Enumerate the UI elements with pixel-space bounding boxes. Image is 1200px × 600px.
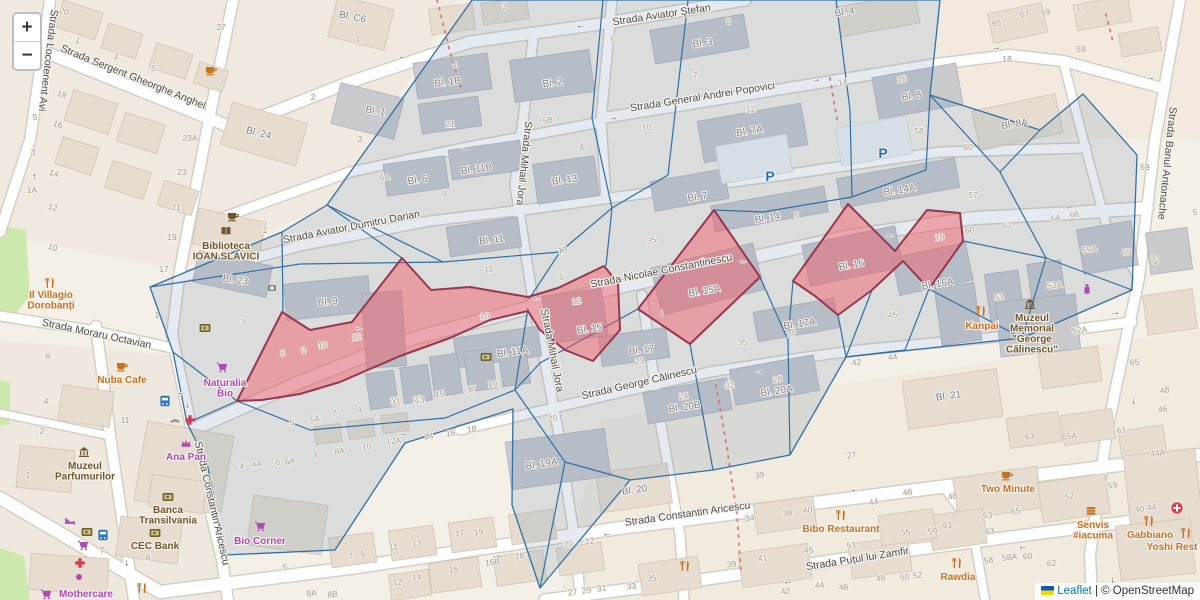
poi-label: Mothercare [59, 589, 113, 600]
house-number: 5B [542, 114, 554, 125]
house-number: 13 [414, 394, 425, 405]
house-number: 10 [317, 339, 328, 350]
hospital-icon [1171, 502, 1182, 513]
house-number: 59 [1076, 44, 1086, 54]
poi-label: Gabbiano [1127, 530, 1173, 541]
house-number: 52 [1064, 490, 1075, 501]
ukraine-flag-icon [1041, 586, 1054, 595]
oneway-arrow-icon: → [177, 389, 187, 400]
house-number: 46 [838, 581, 849, 592]
attribution-bar: Leaflet | © OpenStreetMap [1035, 583, 1200, 600]
house-number: 10 [361, 440, 372, 451]
oneway-arrow-icon: → [183, 400, 194, 410]
osm-attribution-text: © OpenStreetMap [1101, 585, 1194, 597]
oneway-arrow-icon: → [1018, 543, 1028, 554]
building [16, 445, 75, 493]
house-number: 6 [146, 552, 151, 562]
oneway-arrow-icon: → [602, 530, 612, 541]
house-number: 1 [263, 225, 268, 235]
block-label: Bl. 9 [317, 296, 338, 309]
oneway-arrow-icon: → [738, 257, 748, 268]
book-icon [222, 227, 231, 235]
house-number: 5 [1193, 207, 1198, 217]
bus-icon [160, 396, 169, 406]
building [1145, 227, 1192, 274]
house-number: 1 [26, 470, 31, 480]
house-number: 3 [31, 147, 36, 157]
house-number: 5 [290, 417, 295, 427]
house-number: 27 [216, 22, 226, 32]
house-number: 67 [1019, 8, 1030, 19]
house-number: 61 [942, 519, 953, 530]
parking-icon: P [878, 145, 887, 161]
house-number: 17 [454, 527, 465, 538]
house-number: 13 [557, 244, 568, 255]
house-number: 69 [1149, 254, 1161, 265]
house-number: 18 [1002, 54, 1012, 64]
house-number: 55 [900, 526, 911, 537]
oneway-arrow-icon: → [495, 552, 505, 563]
house-number: 19 [487, 378, 498, 389]
zoom-in-button[interactable]: + [14, 14, 40, 42]
house-number: 12 [392, 576, 403, 587]
oneway-arrow-icon: → [1065, 203, 1075, 214]
house-number: 10 [641, 121, 652, 132]
poi-label: Yoshi Rest [1147, 542, 1199, 553]
house-number: 51 [846, 539, 857, 550]
oneway-arrow-icon: → [576, 22, 586, 33]
house-number: 46 [902, 486, 913, 497]
house-number: 58A [1001, 551, 1018, 563]
house-number: 44A [1149, 447, 1166, 459]
house-number: 20 [547, 412, 558, 423]
oneway-arrow-icon: → [458, 142, 468, 153]
house-number: 32 [724, 379, 735, 390]
house-number: 16 [445, 427, 456, 438]
house-number: 65 [991, 17, 1002, 28]
house-number: 14 [423, 430, 434, 441]
house-number: 12 [571, 295, 582, 306]
house-number: 63 [1024, 430, 1035, 441]
oneway-arrow-icon: → [398, 53, 408, 64]
oneway-arrow-icon: → [1145, 72, 1155, 83]
house-number: 39 [726, 558, 737, 569]
house-number: 3 [241, 317, 246, 327]
house-number: 5 [33, 112, 38, 122]
house-number: 34 [744, 512, 755, 523]
house-number: 69 [1040, 6, 1051, 17]
map-container[interactable]: 2013527181614531A23A2323121436A5B8698712… [0, 0, 1200, 600]
house-number: 14 [411, 571, 422, 582]
house-number: 6A [379, 171, 391, 182]
house-number: 11 [121, 415, 130, 425]
house-number: 10 [934, 231, 945, 242]
house-number: 17 [159, 264, 169, 274]
atm-icon [200, 324, 211, 332]
house-number: 22 [584, 535, 595, 546]
house-number: 5A [309, 413, 321, 424]
house-number: 6 [46, 351, 51, 361]
house-number: 44 [868, 496, 879, 507]
house-number: 33 [626, 580, 637, 591]
house-number: 31 [596, 582, 607, 593]
atm-icon [150, 529, 161, 537]
poi-label: Nuba Cafe [97, 375, 147, 386]
house-number: 7 [100, 545, 105, 555]
house-number: 62 [1002, 219, 1013, 230]
oneway-arrow-icon: → [1129, 396, 1140, 406]
house-number: 44 [814, 579, 825, 590]
house-number: 48 [875, 572, 886, 583]
house-number: 21 [445, 119, 455, 129]
house-number: 71 [1070, 1, 1081, 12]
house-number: 19 [167, 232, 177, 242]
poi-label: Il VillagioDorobanți [27, 290, 74, 312]
house-number: 59 [927, 525, 938, 536]
house-number: 40 [802, 504, 813, 515]
house-number: 52A [1071, 324, 1088, 336]
house-number: 51 [994, 291, 1005, 302]
atm-icon [163, 493, 174, 501]
house-number: 17 [466, 383, 477, 394]
building [1142, 289, 1197, 336]
house-number: 35 [737, 336, 748, 347]
oneway-arrow-icon: → [885, 231, 895, 242]
house-number: 38 [782, 507, 793, 518]
dot-icon [76, 574, 82, 580]
house-number: 11 [484, 263, 494, 274]
house-number: 16 [448, 563, 459, 574]
house-number: 23A [182, 133, 197, 143]
poi-label: BibliotecaIOAN SLAVICI [193, 241, 260, 263]
house-number: 23 [634, 355, 645, 366]
burger-icon [1087, 507, 1096, 515]
oneway-arrow-icon: → [28, 172, 39, 182]
attribution-separator: | [1092, 585, 1101, 597]
house-number: 58 [983, 554, 994, 565]
oneway-arrow-icon: → [354, 324, 364, 335]
house-number: 39 [754, 469, 765, 480]
house-number: 8A [306, 587, 318, 598]
house-number: 65A [1061, 430, 1078, 442]
poi-label: Rawdia [940, 572, 975, 583]
house-number: 20 [563, 538, 574, 549]
poi-label: Two Minute [981, 484, 1036, 495]
poi-label: Senvis#iacuma [1073, 520, 1113, 542]
poi-label: Kanpai [965, 321, 999, 332]
house-number: 15 [434, 388, 445, 399]
oneway-arrow-icon: → [608, 112, 618, 123]
house-number: 10 [479, 310, 490, 321]
leaflet-zoom-control[interactable]: + − [12, 12, 42, 71]
house-number: 29 [581, 584, 592, 595]
house-number: 11 [392, 396, 402, 407]
poi-label: Bibo Restaurant [802, 524, 880, 535]
oneway-arrow-icon: → [783, 578, 793, 589]
house-number: 5 [283, 562, 288, 572]
house-number: 45 [803, 544, 814, 555]
oneway-arrow-icon: → [397, 428, 407, 439]
house-number: 1A [27, 185, 38, 195]
house-number: 8A [334, 445, 346, 456]
house-number: 63 [982, 509, 993, 520]
oneway-arrow-icon: → [754, 366, 764, 377]
house-number: 10 [47, 241, 59, 253]
zoom-out-button[interactable]: − [14, 42, 40, 69]
atm-icon [82, 528, 93, 536]
house-number: 60 [963, 142, 973, 152]
house-number: 16 [896, 73, 907, 84]
building [428, 557, 482, 594]
house-number: 62 [1046, 557, 1057, 568]
house-number: 21 [171, 202, 181, 212]
house-number: 58 [914, 126, 924, 136]
bus-icon [98, 530, 107, 540]
house-number: 50 [899, 571, 910, 582]
building [58, 385, 115, 428]
house-number: 48 [947, 490, 958, 501]
house-number: 53A [1046, 279, 1063, 291]
house-number: 57 [968, 190, 978, 200]
oneway-arrow-icon: → [657, 308, 668, 318]
house-number: 4 [44, 396, 49, 406]
oneway-arrow-icon: → [532, 294, 542, 305]
house-number: 28 [772, 373, 783, 384]
house-number: 4 [453, 60, 458, 70]
house-number: 60 [964, 224, 975, 235]
parking-icon: P [765, 168, 774, 184]
house-number: 59 [1107, 479, 1118, 490]
atm-icon [481, 353, 492, 361]
house-number: 24 [678, 390, 689, 401]
house-number: 65 [1010, 505, 1021, 516]
house-number: 12 [745, 103, 756, 114]
map-canvas[interactable]: 2013527181614531A23A2323121436A5B8698712… [0, 0, 1200, 600]
house-number: 3 [358, 134, 363, 144]
oneway-arrow-icon: → [850, 486, 860, 497]
house-number: 11 [389, 541, 399, 552]
house-number: 8B [327, 588, 339, 599]
poi-label: Ana Pan [166, 452, 206, 463]
house-number: 6A [284, 456, 296, 467]
house-number: 63 [984, 525, 995, 536]
house-number: 59 [1140, 162, 1150, 172]
house-number: 27 [567, 586, 578, 597]
house-number: 65 [1129, 356, 1140, 367]
house-number: 19 [473, 526, 484, 537]
house-number: 2 [40, 426, 45, 436]
house-number: 64 [1050, 212, 1061, 223]
house-number: 27 [846, 449, 857, 460]
camera-icon [268, 285, 276, 291]
oneway-arrow-icon: → [811, 74, 821, 85]
house-number: 13 [411, 537, 422, 548]
house-number: 45 [887, 309, 898, 320]
house-number: 18 [514, 550, 525, 561]
house-number: 1 [155, 310, 160, 320]
oneway-arrow-icon: → [122, 558, 133, 568]
house-number: 48 [1159, 384, 1170, 395]
house-number: 61 [1116, 424, 1127, 435]
house-number: 4A [251, 459, 263, 470]
house-number: 1 [356, 34, 361, 44]
poi-label: CEC Bank [131, 541, 180, 552]
house-number: 44 [887, 351, 898, 362]
poi-label: Bio Corner [234, 536, 286, 547]
house-number: 42 [851, 356, 862, 367]
house-number: 2 [311, 92, 316, 102]
leaflet-link[interactable]: Leaflet [1057, 585, 1092, 597]
house-number: 14 [837, 76, 848, 87]
oneway-arrow-icon: → [991, 42, 1001, 53]
house-number: 35 [646, 572, 657, 583]
park-area [0, 226, 30, 320]
house-number: 18 [466, 423, 477, 434]
house-number: 69 [1121, 246, 1132, 257]
house-number: 52 [912, 569, 923, 580]
house-number: 46 [1157, 403, 1168, 414]
restaurant-icon [45, 278, 53, 288]
house-number: 41 [757, 552, 768, 563]
oneway-arrow-icon: → [1110, 307, 1120, 318]
house-number: 23 [177, 167, 187, 177]
house-number: 35 [646, 234, 657, 245]
